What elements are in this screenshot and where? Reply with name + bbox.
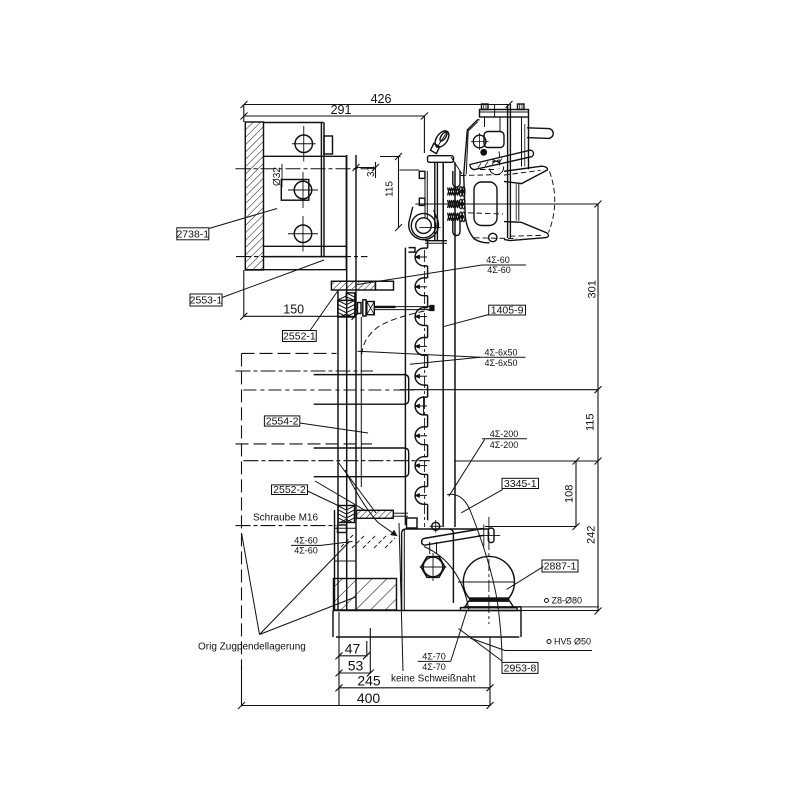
svg-text:4Σ-70: 4Σ-70 <box>422 662 446 672</box>
svg-text:245: 245 <box>357 672 381 688</box>
svg-text:2552-1: 2552-1 <box>283 331 316 343</box>
svg-text:47: 47 <box>345 641 361 657</box>
svg-text:4Σ-200: 4Σ-200 <box>490 440 519 450</box>
svg-text:4Σ-70: 4Σ-70 <box>422 652 446 662</box>
svg-text:31: 31 <box>366 165 377 177</box>
svg-text:4Σ-60: 4Σ-60 <box>294 536 318 546</box>
svg-text:2554-2: 2554-2 <box>266 415 299 427</box>
svg-text:291: 291 <box>331 103 352 117</box>
svg-text:Schraube M16: Schraube M16 <box>253 513 318 524</box>
svg-text:4Σ-60: 4Σ-60 <box>486 255 510 265</box>
svg-text:3345-1: 3345-1 <box>504 478 537 490</box>
svg-text:242: 242 <box>586 526 598 544</box>
svg-text:Ø32: Ø32 <box>272 167 283 186</box>
svg-text:2553-1: 2553-1 <box>190 295 223 307</box>
svg-text:301: 301 <box>587 280 599 298</box>
svg-text:keine Schweißnaht: keine Schweißnaht <box>391 674 476 685</box>
svg-text:Z8-Ø80: Z8-Ø80 <box>552 596 583 606</box>
svg-text:400: 400 <box>357 690 381 706</box>
svg-text:2887-1: 2887-1 <box>544 561 577 573</box>
svg-text:1405-9: 1405-9 <box>491 305 524 317</box>
svg-text:4Σ-60: 4Σ-60 <box>294 546 318 556</box>
svg-text:150: 150 <box>283 303 304 317</box>
svg-text:53: 53 <box>348 658 364 674</box>
svg-text:115: 115 <box>385 181 396 197</box>
svg-text:2552-2: 2552-2 <box>273 484 306 496</box>
svg-text:2738-1: 2738-1 <box>176 228 209 240</box>
svg-text:108: 108 <box>564 485 576 503</box>
svg-text:4Σ-60: 4Σ-60 <box>487 265 511 275</box>
svg-text:4Σ-200: 4Σ-200 <box>490 429 519 439</box>
svg-text:4Σ-6x50: 4Σ-6x50 <box>484 347 517 357</box>
svg-text:HV5 Ø50: HV5 Ø50 <box>554 637 591 647</box>
svg-text:Orig Zugpendellagerung: Orig Zugpendellagerung <box>198 642 306 653</box>
svg-text:115: 115 <box>585 413 597 431</box>
svg-text:426: 426 <box>371 92 392 106</box>
svg-text:4Σ-6x50: 4Σ-6x50 <box>484 358 517 368</box>
svg-text:2953-8: 2953-8 <box>504 662 537 674</box>
